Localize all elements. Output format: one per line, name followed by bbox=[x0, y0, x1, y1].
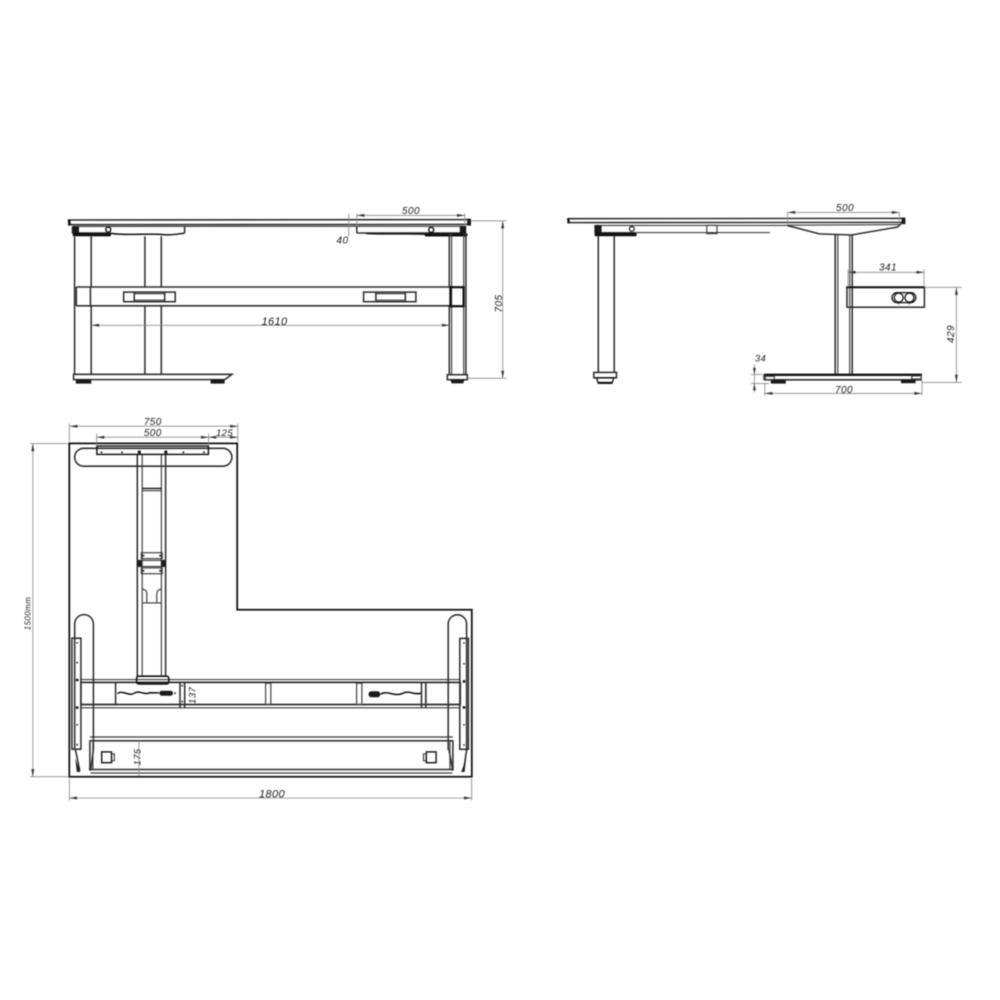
svg-text:125: 125 bbox=[216, 428, 233, 439]
svg-text:500: 500 bbox=[836, 203, 854, 214]
svg-text:500: 500 bbox=[144, 428, 162, 439]
svg-text:40: 40 bbox=[337, 236, 349, 247]
svg-text:750: 750 bbox=[144, 417, 162, 428]
svg-text:1500mm: 1500mm bbox=[24, 597, 33, 631]
svg-text:34: 34 bbox=[755, 354, 766, 365]
svg-text:705: 705 bbox=[494, 295, 505, 313]
svg-text:175: 175 bbox=[133, 748, 144, 765]
svg-text:700: 700 bbox=[835, 385, 853, 396]
svg-text:137: 137 bbox=[187, 686, 198, 703]
svg-text:500: 500 bbox=[402, 206, 420, 217]
svg-text:341: 341 bbox=[879, 262, 897, 273]
svg-text:429: 429 bbox=[946, 325, 957, 343]
svg-text:1610: 1610 bbox=[261, 316, 288, 328]
svg-text:1800: 1800 bbox=[259, 788, 286, 800]
